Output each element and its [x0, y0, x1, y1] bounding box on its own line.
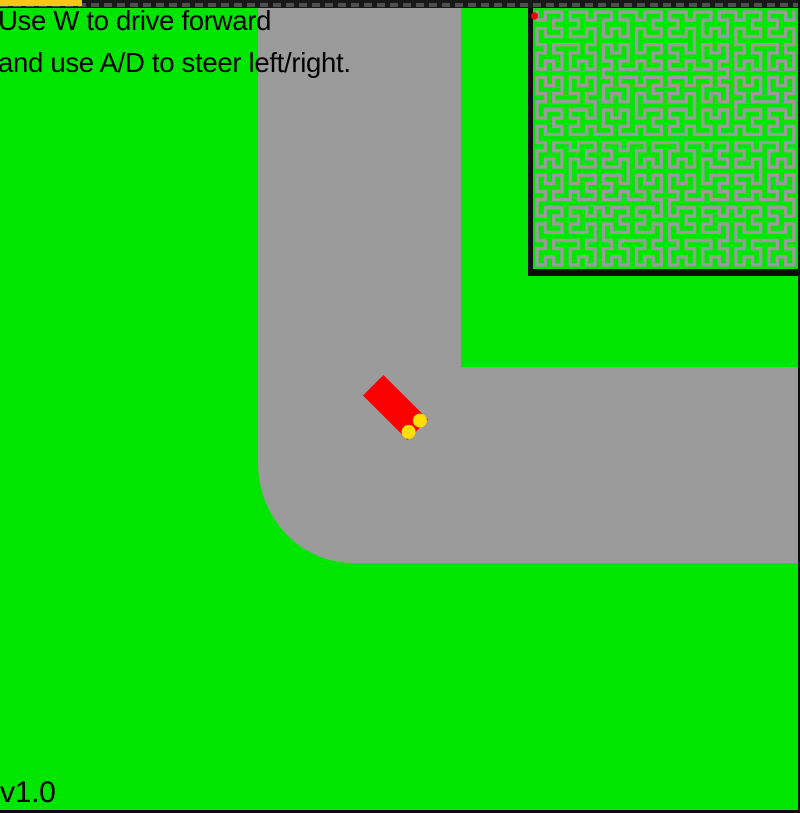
game-scene	[0, 0, 800, 813]
minimap	[528, 0, 800, 276]
instruction-line-1: Use W to drive forward	[0, 7, 271, 35]
game-viewport[interactable]: Use W to drive forward and use A/D to st…	[0, 0, 800, 813]
minimap-player-dot	[531, 12, 538, 19]
instruction-line-2: and use A/D to steer left/right.	[0, 49, 351, 77]
version-label: v1.0	[0, 778, 56, 808]
minimap-ground	[533, 8, 798, 269]
